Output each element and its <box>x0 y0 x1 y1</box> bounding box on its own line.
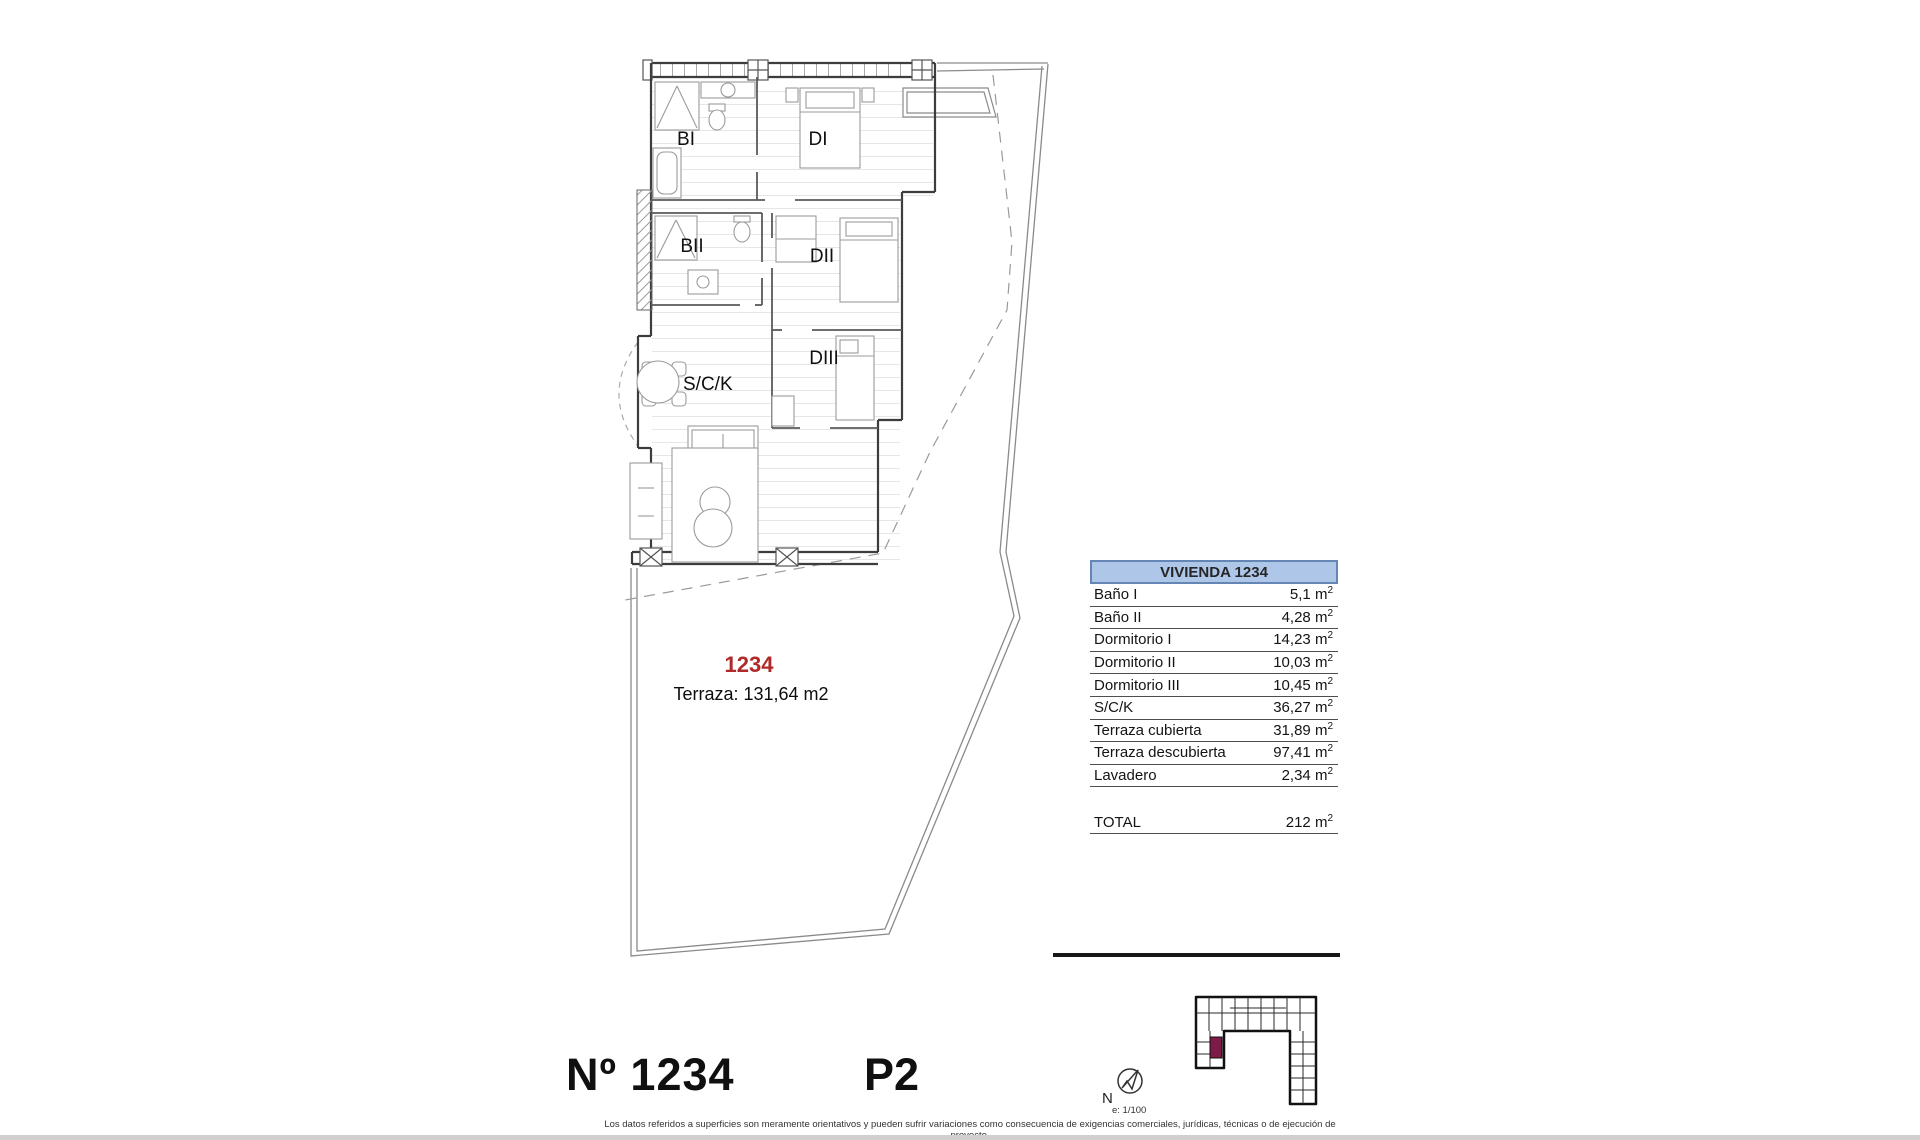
key-plan <box>1196 997 1316 1104</box>
separator-rule <box>1053 953 1340 957</box>
row-value: 2,34 m2 <box>1282 767 1338 784</box>
north-arrow-icon <box>1118 1069 1142 1093</box>
total-label: TOTAL <box>1090 814 1141 831</box>
row-value: 4,28 m2 <box>1282 609 1338 626</box>
row-label: Dormitorio II <box>1090 654 1176 671</box>
row-value: 14,23 m2 <box>1273 631 1338 648</box>
row-value: 36,27 m2 <box>1273 699 1338 716</box>
row-value: 97,41 m2 <box>1273 744 1338 761</box>
shaft <box>637 190 652 310</box>
table-row: S/C/K 36,27 m2 <box>1090 697 1338 720</box>
table-row: Baño II 4,28 m2 <box>1090 607 1338 630</box>
table-total-row: TOTAL 212 m2 <box>1090 811 1338 834</box>
row-value: 10,03 m2 <box>1273 654 1338 671</box>
row-value: 10,45 m2 <box>1273 677 1338 694</box>
table-row: Dormitorio III 10,45 m2 <box>1090 674 1338 697</box>
table-row: Dormitorio I 14,23 m2 <box>1090 629 1338 652</box>
key-plan-highlighted-unit <box>1210 1037 1222 1058</box>
plan-unit-number: 1234 <box>725 652 775 677</box>
total-value: 212 m2 <box>1286 814 1338 831</box>
row-label: Dormitorio III <box>1090 677 1180 694</box>
table-spacer <box>1090 787 1338 811</box>
table-row: Baño I 5,1 m2 <box>1090 584 1338 607</box>
row-label: Baño II <box>1090 609 1142 626</box>
row-label: Terraza cubierta <box>1090 722 1202 739</box>
room-label-bi: BI <box>677 129 695 150</box>
table-row: Terraza cubierta 31,89 m2 <box>1090 720 1338 743</box>
area-table-title: VIVIENDA 1234 <box>1090 560 1338 584</box>
row-label: Terraza descubierta <box>1090 744 1226 761</box>
floor-label: P2 <box>864 1052 919 1097</box>
row-value: 5,1 m2 <box>1290 586 1338 603</box>
table-row: Dormitorio II 10,03 m2 <box>1090 652 1338 675</box>
unit-title: Nº 1234 <box>566 1052 735 1097</box>
floor-plan: BI DI BII DII DIII S/C/K 1234 Terraza: 1… <box>0 0 1920 1140</box>
planter <box>903 88 996 117</box>
plan-terrace-note: Terraza: 131,64 m2 <box>673 684 828 704</box>
room-label-dii: DII <box>810 246 834 267</box>
row-label: Dormitorio I <box>1090 631 1172 648</box>
plan-sheet: BI DI BII DII DIII S/C/K 1234 Terraza: 1… <box>0 0 1920 1140</box>
room-label-diii: DIII <box>809 348 839 369</box>
page-bottom-edge <box>0 1135 1920 1140</box>
table-row: Lavadero 2,34 m2 <box>1090 765 1338 788</box>
area-table: VIVIENDA 1234 Baño I 5,1 m2 Baño II 4,28… <box>1090 560 1338 834</box>
scale-label: e: 1/100 <box>1112 1105 1146 1116</box>
room-label-di: DI <box>809 129 828 150</box>
row-label: Lavadero <box>1090 767 1157 784</box>
table-row: Terraza descubierta 97,41 m2 <box>1090 742 1338 765</box>
room-label-bii: BII <box>680 236 703 257</box>
top-boundary-wall <box>643 60 935 80</box>
row-label: Baño I <box>1090 586 1137 603</box>
row-label: S/C/K <box>1090 699 1133 716</box>
row-value: 31,89 m2 <box>1273 722 1338 739</box>
room-label-sck: S/C/K <box>683 374 733 395</box>
